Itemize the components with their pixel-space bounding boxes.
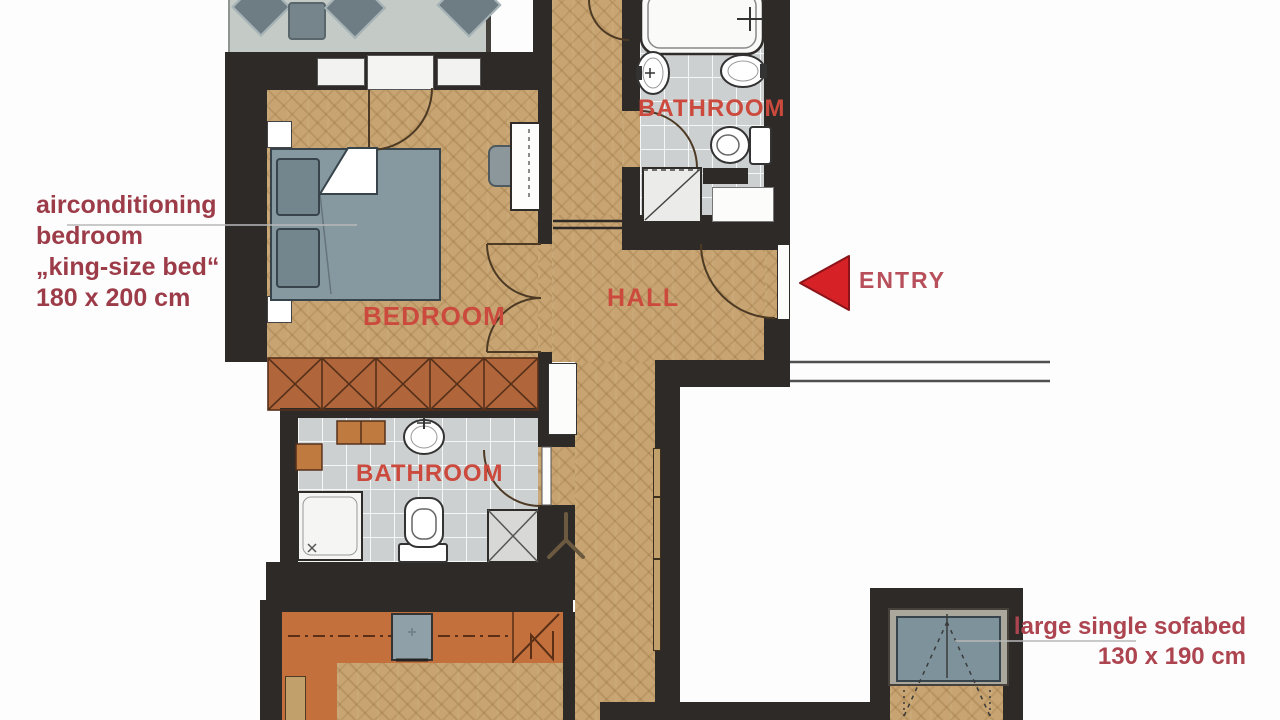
terrace-table	[288, 2, 326, 40]
bedroom-annotation-line: bedroom	[36, 221, 219, 252]
entry-door-leaf	[777, 244, 790, 320]
alcove-floor	[890, 680, 1003, 720]
entry-label: ENTRY	[859, 267, 946, 294]
wall-kitchen-right	[563, 612, 575, 720]
desk	[510, 122, 541, 211]
room-label-bathroom-middle: BATHROOM	[356, 460, 504, 488]
wall-corridor-left-b	[552, 505, 575, 600]
wall-bathroom-mid-bottom	[266, 562, 552, 600]
wall-bathroom-mid-top	[280, 408, 538, 418]
entry-arrow-icon	[800, 256, 849, 310]
bed-pillow-1	[276, 158, 320, 216]
bathroom-top-niche	[712, 187, 774, 222]
wall-cutout-bottom	[600, 702, 880, 720]
wall-kitchen-top	[260, 600, 573, 612]
sofabed-cushion	[896, 616, 1001, 682]
room-label-hall: HALL	[607, 284, 680, 313]
terrace-door-opening	[367, 55, 434, 90]
bedroom-annotation: airconditioning bedroom „king-size bed“ …	[36, 190, 219, 314]
wall-bedroom-left	[225, 52, 267, 362]
wardrobe	[268, 358, 538, 410]
bedroom-annotation-line: „king-size bed“	[36, 252, 219, 283]
wall-hall-bottom	[655, 360, 790, 387]
wall-bathroom-mid-left	[280, 412, 298, 562]
corridor-door-leaf-1	[653, 448, 661, 497]
wall-kitchen-left	[260, 600, 282, 720]
sofabed-annotation-line: 130 x 190 cm	[1000, 642, 1246, 672]
floor-plan: BEDROOM BATHROOM BATHROOM HALL ENTRY air…	[0, 0, 1280, 720]
bedroom-annotation-line: 180 x 200 cm	[36, 283, 219, 314]
corridor-door-leaf-3	[653, 559, 661, 651]
bathroom-middle-floor	[298, 418, 538, 562]
room-label-bedroom: BEDROOM	[363, 301, 506, 332]
corridor-upper-floor	[552, 0, 622, 215]
wall-alcove-top	[870, 588, 1023, 610]
corridor-door-leaf-2	[653, 497, 661, 559]
terrace-window-1	[317, 58, 365, 86]
corridor-lower-floor	[575, 362, 655, 720]
room-label-bathroom-top: BATHROOM	[638, 95, 786, 123]
bed-pillow-2	[276, 228, 320, 288]
sofabed-annotation: large single sofabed 130 x 190 cm	[1000, 612, 1246, 672]
bedroom-annotation-line: airconditioning	[36, 190, 219, 221]
living-floor	[337, 663, 563, 720]
corridor-niche	[548, 363, 577, 435]
door-opening-bathroom-mid	[538, 447, 575, 505]
wall-corridor-top-left	[533, 0, 552, 90]
sofabed-annotation-line: large single sofabed	[1000, 612, 1246, 642]
terrace-window-2	[437, 58, 481, 86]
bedroom-window-niche-1	[267, 121, 292, 148]
wall-corridor-left-a	[552, 433, 575, 447]
kitchen-tall-cabinet	[285, 676, 306, 720]
boundary-lines	[790, 362, 1050, 381]
door-opening-bedroom	[538, 244, 552, 352]
wall-bathroom-top-left-b	[622, 167, 640, 222]
wall-alcove-left	[870, 610, 890, 720]
